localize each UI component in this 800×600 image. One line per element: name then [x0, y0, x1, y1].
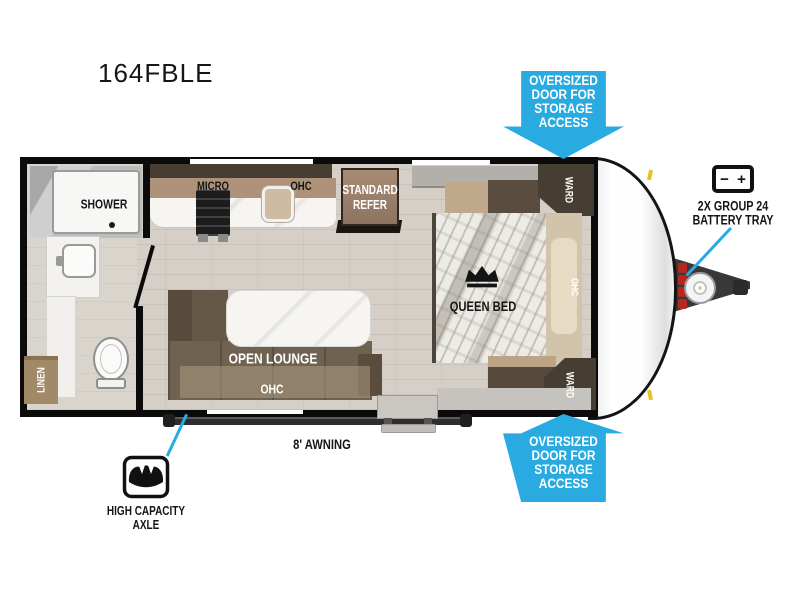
kitchen-counter: [150, 198, 336, 228]
battery-icon: − +: [712, 165, 754, 193]
awning-knob-right: [460, 414, 472, 427]
refer-label-2: REFER: [353, 199, 387, 212]
toilet-bowl: [93, 337, 129, 381]
scale-icon: [122, 455, 170, 499]
battery-label-1: 2X GROUP 24: [698, 199, 769, 213]
bed-corner-cabinet-tan: [445, 182, 493, 216]
queen-bed-label: QUEEN BED: [450, 299, 517, 313]
ward-top-label: WARD: [563, 177, 574, 203]
clearance-light-top: [647, 170, 653, 181]
entry-step: [377, 395, 438, 419]
arrow-bottom-line3: STORAGE: [510, 463, 616, 477]
window-top-right: [412, 160, 490, 165]
lounge-ohc-label: OHC: [260, 383, 283, 396]
arrow-bottom-line2: DOOR FOR: [510, 449, 616, 463]
shower-drain: [109, 222, 115, 228]
linen-label: LINEN: [37, 367, 48, 393]
bathroom-sink: [62, 244, 96, 278]
arrow-top-line2: DOOR FOR: [510, 88, 616, 102]
oversized-door-arrow-top: OVERSIZED DOOR FOR STORAGE ACCESS: [503, 71, 624, 159]
battery-minus: −: [720, 171, 729, 188]
oversized-door-arrow-bottom: OVERSIZED DOOR FOR STORAGE ACCESS: [503, 414, 624, 502]
arrow-top-line1: OVERSIZED: [510, 74, 616, 88]
window-bottom: [207, 410, 303, 414]
kitchen-ohc-label: OHC: [290, 180, 311, 192]
front-cap: [588, 157, 677, 420]
arrow-bottom-line1: OVERSIZED: [510, 435, 616, 449]
refer-label-1: STANDARD: [342, 184, 397, 197]
ward-bottom-label: WARD: [564, 372, 575, 398]
open-lounge-label: OPEN LOUNGE: [229, 352, 318, 367]
sofa-corner-cushion: [192, 290, 228, 346]
step-tray: [381, 424, 436, 433]
battery-plus: +: [737, 171, 746, 188]
awning-knob-left: [163, 414, 175, 427]
floorplan-164fble: 164FBLE SHOWER LINEN: [0, 0, 800, 600]
battery-label-2: BATTERY TRAY: [692, 213, 773, 227]
bathroom-wall-lower: [136, 306, 143, 410]
axle-label-2: AXLE: [133, 519, 160, 532]
clearance-light-bottom: [647, 390, 653, 401]
faucet: [56, 256, 64, 266]
awning-label: 8' AWNING: [293, 437, 351, 451]
arrow-top-line3: STORAGE: [510, 102, 616, 116]
toilet-tank: [96, 378, 126, 389]
bathroom-wall-upper: [143, 164, 150, 238]
kitchen-sink: [262, 186, 294, 222]
propane-tank-icon: [684, 272, 716, 304]
micro-label: MICRO: [197, 180, 229, 192]
range-micro: [196, 190, 230, 236]
shower-label: SHOWER: [81, 198, 128, 211]
crown-icon: [461, 264, 503, 292]
kitchen-ohc-cabinet: [150, 164, 332, 178]
coupler: [733, 280, 748, 295]
bed-ohc-label: OHC: [569, 278, 580, 296]
page-title: 164FBLE: [98, 60, 213, 86]
arrow-top-line4: ACCESS: [510, 116, 616, 130]
axle-label-1: HIGH CAPACITY: [107, 505, 185, 518]
arrow-bottom-line4: ACCESS: [510, 477, 616, 491]
window-top-left: [190, 159, 313, 164]
lounge-table: [226, 290, 371, 347]
